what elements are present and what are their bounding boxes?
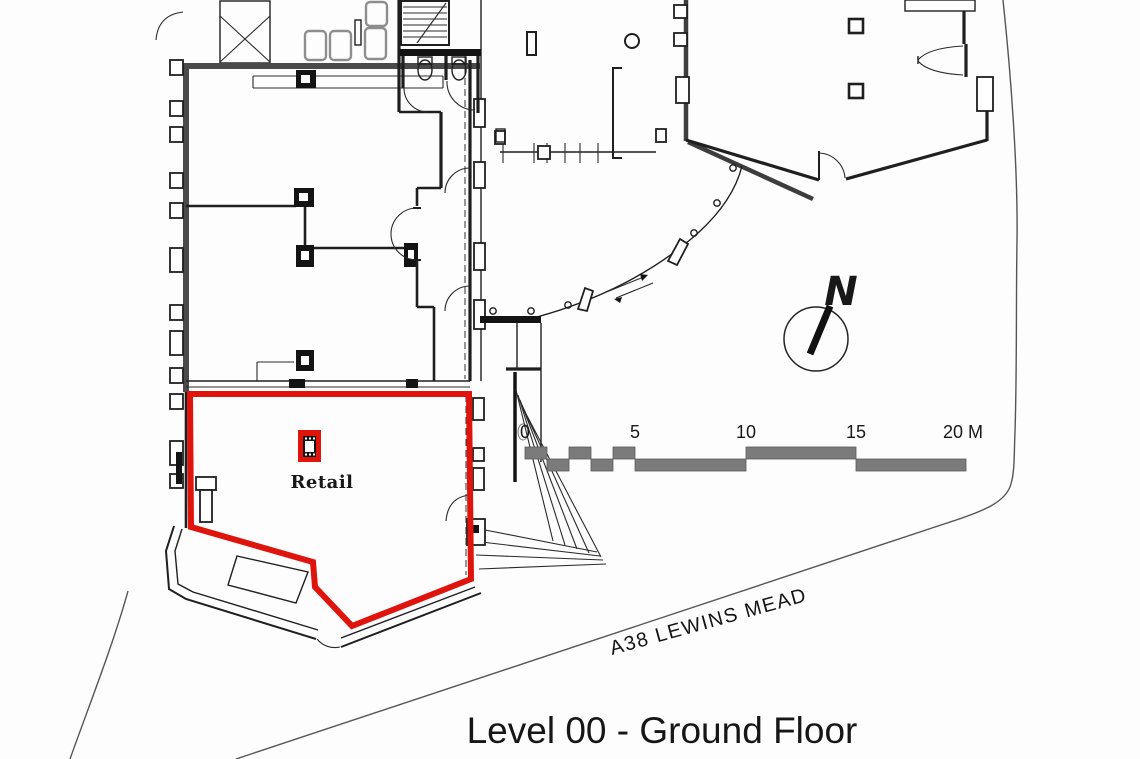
retail-column-icon (298, 430, 321, 462)
site-boundary-lines (70, 0, 1017, 759)
drawing-title: Level 00 - Ground Floor (467, 710, 858, 751)
retail-unit: Retail (166, 394, 485, 648)
scale-tick-label-20: 20 M (943, 422, 983, 442)
scale-tick-label-0: 0 (520, 422, 530, 442)
floorplan-canvas: Retail N 0 5 10 15 20 M A38 LEWINS MEAD … (0, 0, 1140, 759)
north-arrow-letter: N (824, 269, 857, 315)
direction-arrows (609, 274, 653, 303)
stair-hatch (228, 556, 308, 603)
hex-room-linework (674, 0, 993, 180)
scale-bar: 0 5 10 15 20 M (520, 422, 983, 471)
floor-plan-drawing: Retail N 0 5 10 15 20 M A38 LEWINS MEAD … (0, 0, 1140, 759)
scale-tick-label-10: 10 (736, 422, 756, 442)
road-name-label: A38 LEWINS MEAD (607, 584, 809, 660)
external-stair-fan (470, 390, 606, 569)
scale-tick-label-15: 15 (846, 422, 866, 442)
plaza-linework (470, 32, 813, 569)
left-wing-linework (170, 0, 485, 528)
north-arrow-icon: N (784, 269, 858, 371)
retail-demise-outline (190, 394, 471, 626)
bollards (490, 165, 736, 314)
retail-area-label: Retail (290, 472, 353, 493)
scale-tick-label-5: 5 (630, 422, 640, 442)
